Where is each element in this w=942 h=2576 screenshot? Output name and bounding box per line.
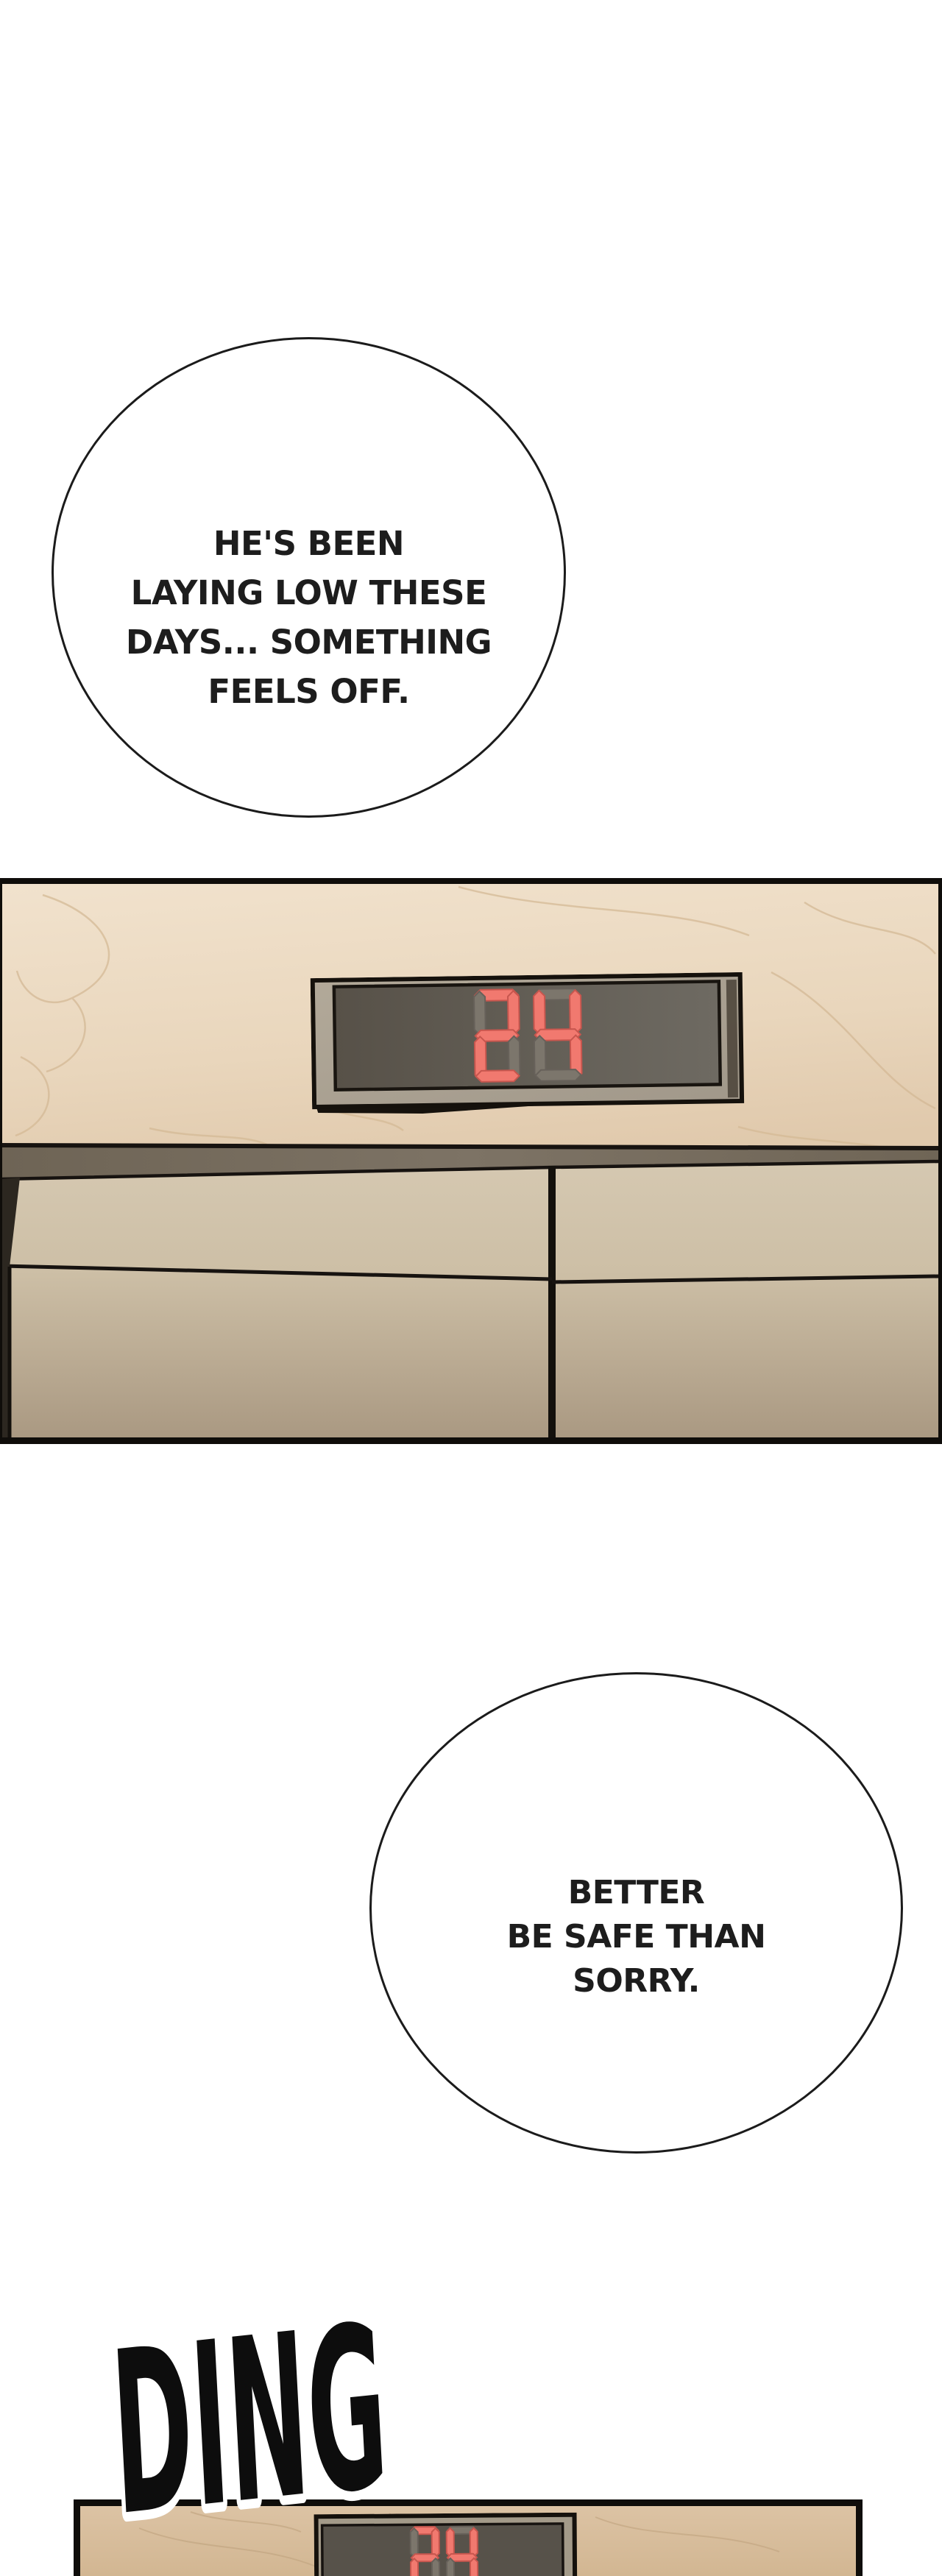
door-center-gap <box>548 1166 556 1437</box>
segment-B-lit <box>570 990 581 1034</box>
beam-top-line <box>2 1145 938 1148</box>
segment-C-unlit <box>432 2558 439 2576</box>
segment-C-lit <box>470 2558 478 2576</box>
comic-page: HE'S BEEN LAYING LOW THESE DAYS... SOMET… <box>0 0 942 2576</box>
bubble-line: DAYS... SOMETHING <box>126 618 492 667</box>
sfx-ding-text: DING <box>107 2277 393 2567</box>
panel-elevator-closeup <box>0 878 942 1444</box>
segment-B-lit <box>470 2528 478 2557</box>
segment-D-unlit <box>535 1069 581 1081</box>
bubble-line: FEELS OFF. <box>126 667 492 716</box>
bubble-line: LAYING LOW THESE <box>126 568 492 618</box>
sfx-ding: DING <box>74 2307 427 2576</box>
segment-F-lit <box>447 2528 454 2557</box>
segment-B-lit <box>508 991 520 1035</box>
speech-bubble-2: BETTER BE SAFE THAN SORRY. <box>369 1672 903 2154</box>
segment-B-lit <box>432 2528 439 2557</box>
segment-D-lit <box>475 1070 519 1082</box>
speech-bubble-2-text: BETTER BE SAFE THAN SORRY. <box>507 1871 766 2003</box>
bubble-line: SORRY. <box>507 1959 766 2003</box>
bubble-line: BETTER <box>507 1871 766 1915</box>
bubble-line: BE SAFE THAN <box>507 1915 766 1959</box>
elevator-hall-artwork <box>2 884 938 1437</box>
floor-indicator-display <box>311 972 747 1119</box>
display-screen <box>334 981 720 1089</box>
speech-bubble-1: HE'S BEEN LAYING LOW THESE DAYS... SOMET… <box>52 337 566 818</box>
speech-bubble-1-text: HE'S BEEN LAYING LOW THESE DAYS... SOMET… <box>126 519 492 716</box>
segment-E-unlit <box>447 2558 454 2576</box>
bubble-line: HE'S BEEN <box>126 519 492 568</box>
display-frame-side-face <box>726 980 738 1097</box>
elevator-doors <box>2 1150 938 1437</box>
segment-F-lit <box>534 991 545 1035</box>
segment-F-unlit <box>474 991 486 1036</box>
